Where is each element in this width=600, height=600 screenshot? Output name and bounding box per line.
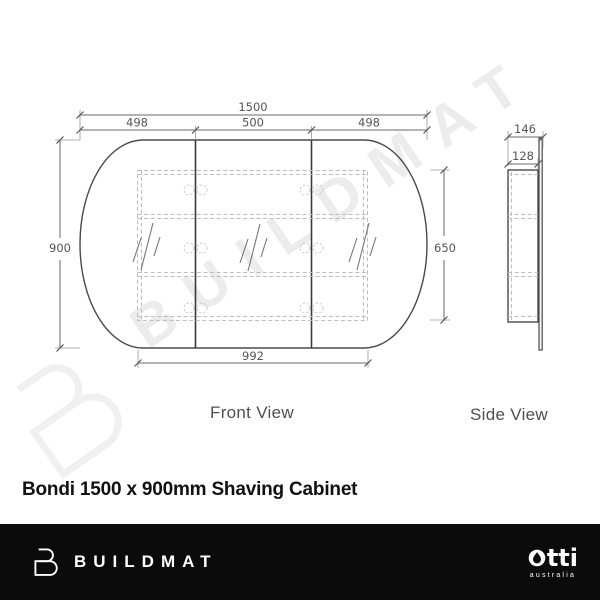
product-drawing-page: BUILDMAT: [0, 0, 600, 600]
dim-label-498-right: 498: [358, 116, 380, 130]
dim-label-500: 500: [242, 116, 264, 130]
otti-tagline: australia: [530, 572, 576, 579]
side-hidden-lines: [508, 172, 538, 320]
dimension-carcass-width: 992: [135, 349, 372, 368]
carcass-hidden-lines: [138, 170, 368, 321]
dim-label-1500: 1500: [238, 100, 267, 114]
dim-label-992: 992: [242, 349, 264, 363]
buildmat-wordmark: BUILDMAT: [74, 552, 218, 572]
footer-brand-bar: BUILDMAT tti australia: [0, 524, 600, 600]
otti-o-drop-icon: [528, 549, 546, 567]
dim-label-498-left: 498: [126, 116, 148, 130]
side-view-label: Side View: [429, 405, 589, 425]
dimension-overall-height: 900: [49, 137, 80, 352]
side-view-drawing: 146 128: [505, 122, 547, 350]
dim-label-900: 900: [49, 241, 71, 255]
otti-wordmark-suffix: tti: [547, 546, 578, 570]
front-view-label: Front View: [172, 403, 332, 423]
dimension-cabinet-depth: 128: [505, 149, 542, 169]
side-mirror-door: [539, 138, 542, 350]
buildmat-logo: BUILDMAT: [33, 548, 218, 576]
cabinet-technical-drawing: 1500 498 500 498: [0, 0, 600, 600]
page-title: Bondi 1500 x 900mm Shaving Cabinet: [22, 479, 357, 501]
otti-logo: tti australia: [528, 546, 578, 579]
buildmat-b-icon: [33, 548, 63, 576]
dim-label-146: 146: [514, 122, 536, 136]
dim-label-128: 128: [512, 149, 534, 163]
side-cabinet-box: [508, 170, 538, 322]
dimension-door-widths: 498 500 498: [77, 116, 431, 141]
mirror-glass-marks: [133, 223, 376, 271]
front-view-drawing: 1500 498 500 498: [49, 100, 456, 368]
dim-label-650: 650: [434, 241, 456, 255]
dimension-carcass-height: 650: [430, 167, 456, 324]
